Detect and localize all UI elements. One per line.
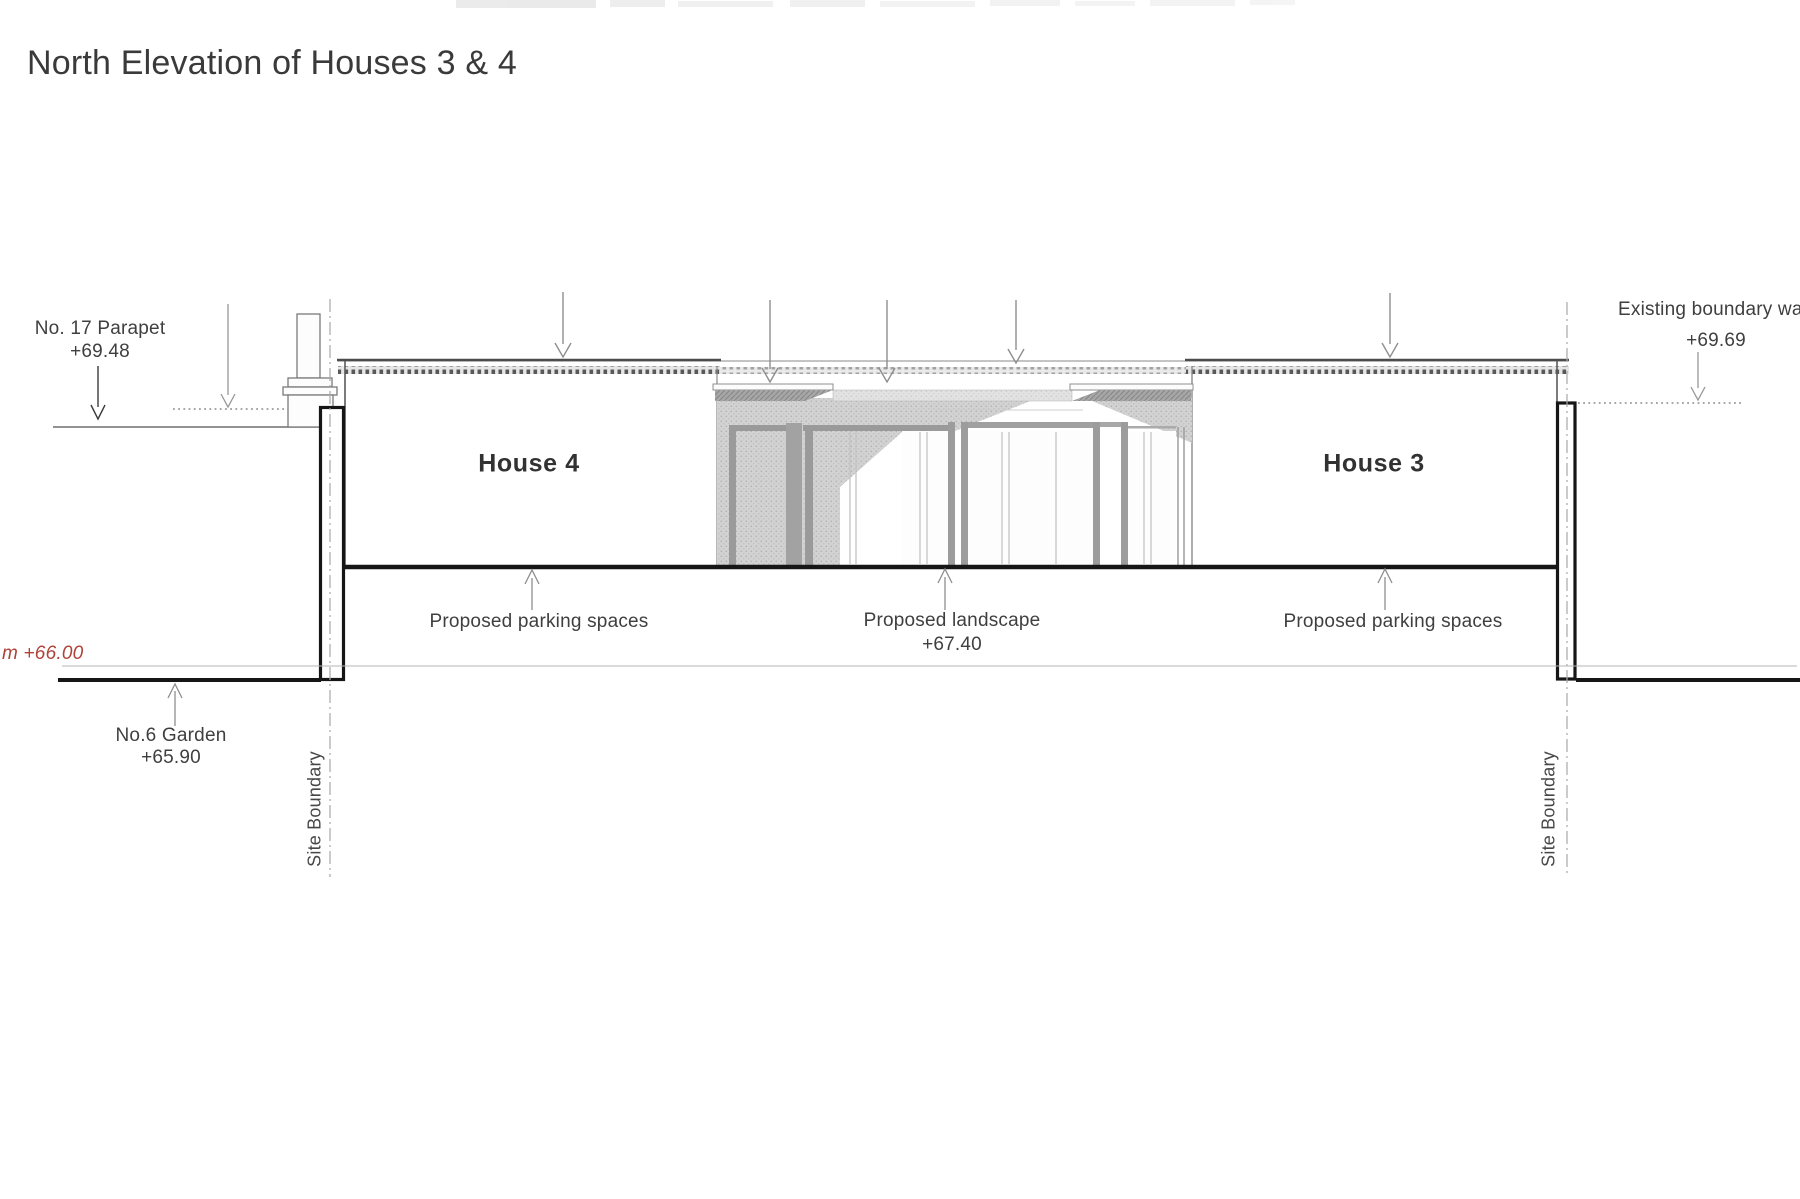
- parking-left-label: Proposed parking spaces: [429, 611, 648, 633]
- existing-boundary-wall-level: +69.69: [1686, 330, 1746, 352]
- annotation-up-arrows: [168, 569, 1392, 726]
- no6-garden-label: No.6 Garden: [116, 725, 227, 747]
- no17-parapet-label: No. 17 Parapet: [35, 318, 166, 340]
- down-arrow-icon: [555, 292, 571, 357]
- up-arrow-icon: [938, 569, 952, 610]
- no17-parapet-level: +69.48: [70, 341, 130, 363]
- house3-roof-edge-hatch: [1186, 366, 1569, 374]
- elevation-linework: [0, 0, 1800, 1199]
- elevation-drawing-sheet: North Elevation of Houses 3 & 4 No. 17 P…: [0, 0, 1800, 1199]
- datum-level-label: m +66.00: [2, 643, 83, 665]
- site-boundary-left-label: Site Boundary: [305, 751, 326, 867]
- up-arrow-icon: [1378, 569, 1392, 610]
- house3-label: House 3: [1323, 450, 1424, 479]
- left-wall-top-leader-arrow-icon: [221, 304, 235, 407]
- down-arrow-icon: [1008, 300, 1024, 363]
- drawing-title: North Elevation of Houses 3 & 4: [27, 44, 517, 83]
- no17-leader-arrow-icon: [91, 366, 105, 419]
- house4-label: House 4: [478, 450, 579, 479]
- down-arrow-icon: [1382, 293, 1398, 357]
- house4-roof-edge-hatch: [338, 366, 720, 374]
- left-boundary-wall: [321, 408, 344, 680]
- existing-boundary-leader-arrow-icon: [1691, 352, 1705, 400]
- landscape-label: Proposed landscape: [864, 610, 1041, 632]
- landscape-level: +67.40: [922, 634, 982, 656]
- no6-garden-level: +65.90: [141, 747, 201, 769]
- courtyard-doors-right: [850, 422, 1184, 567]
- existing-boundary-wall-label: Existing boundary wall: [1618, 299, 1800, 321]
- up-arrow-icon: [525, 570, 539, 610]
- up-arrow-icon: [168, 684, 182, 726]
- right-boundary-wall: [1558, 403, 1576, 679]
- cropped-text-artifact: [456, 0, 1295, 8]
- parking-right-label: Proposed parking spaces: [1283, 611, 1502, 633]
- courtyard-roof-edge-hatch: [720, 367, 1186, 374]
- site-boundary-right-label: Site Boundary: [1539, 751, 1560, 867]
